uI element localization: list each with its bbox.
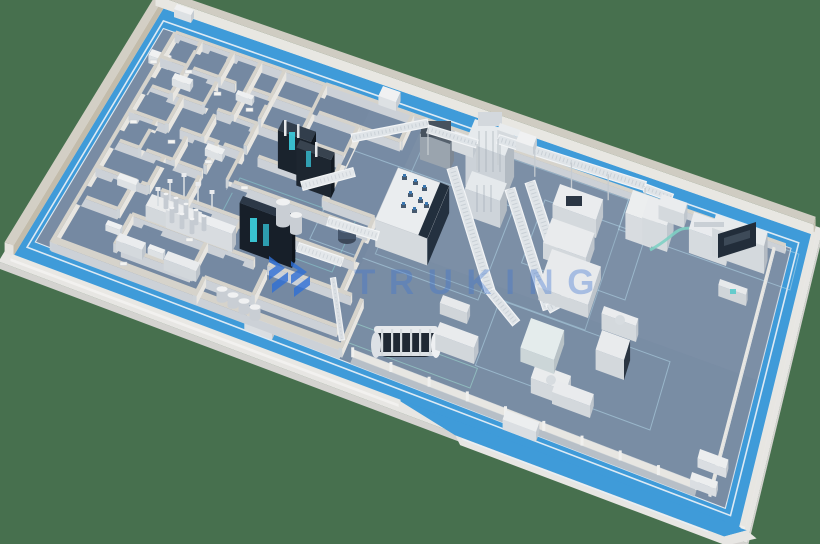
svg-text:TRUKING: TRUKING <box>354 263 608 302</box>
